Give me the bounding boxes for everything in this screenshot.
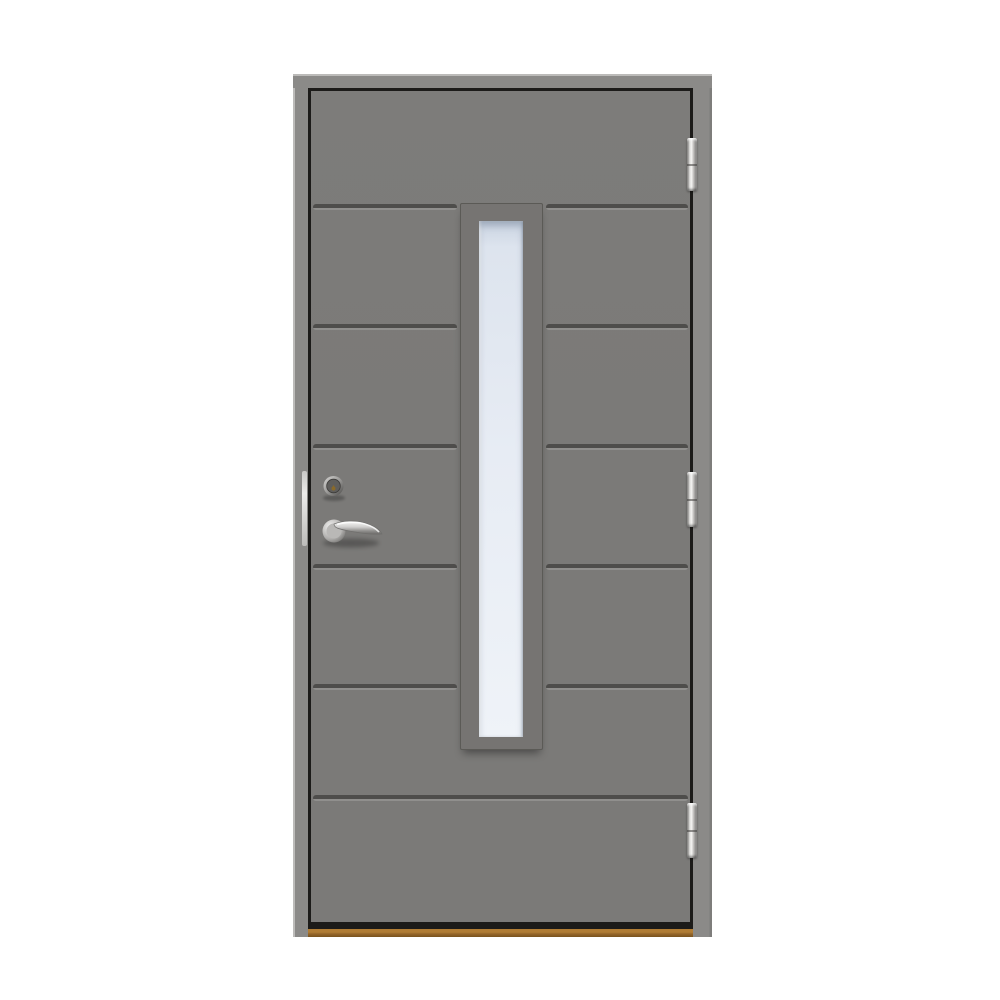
- panel-groove: [313, 684, 457, 690]
- strike-plate: [302, 471, 307, 546]
- door-leaf: [311, 91, 690, 922]
- product-photo-door: [0, 0, 1000, 1000]
- panel-groove: [546, 684, 688, 690]
- panel-groove: [313, 564, 457, 570]
- panel-groove: [313, 204, 457, 210]
- hinge-top: [687, 138, 697, 191]
- window-glass: [479, 221, 523, 737]
- door-handle: [313, 510, 397, 554]
- panel-groove: [546, 324, 688, 330]
- panel-groove: [313, 444, 457, 450]
- panel-groove: [546, 204, 688, 210]
- hinge-middle: [687, 472, 697, 527]
- window-frame: [460, 203, 543, 750]
- door-frame-top: [293, 74, 712, 89]
- hinge-bottom: [687, 803, 697, 858]
- lock-cylinder: [318, 470, 350, 506]
- panel-groove: [313, 324, 457, 330]
- panel-groove: [546, 444, 688, 450]
- wood-threshold: [308, 929, 693, 937]
- panel-groove: [546, 564, 688, 570]
- panel-groove: [313, 795, 688, 801]
